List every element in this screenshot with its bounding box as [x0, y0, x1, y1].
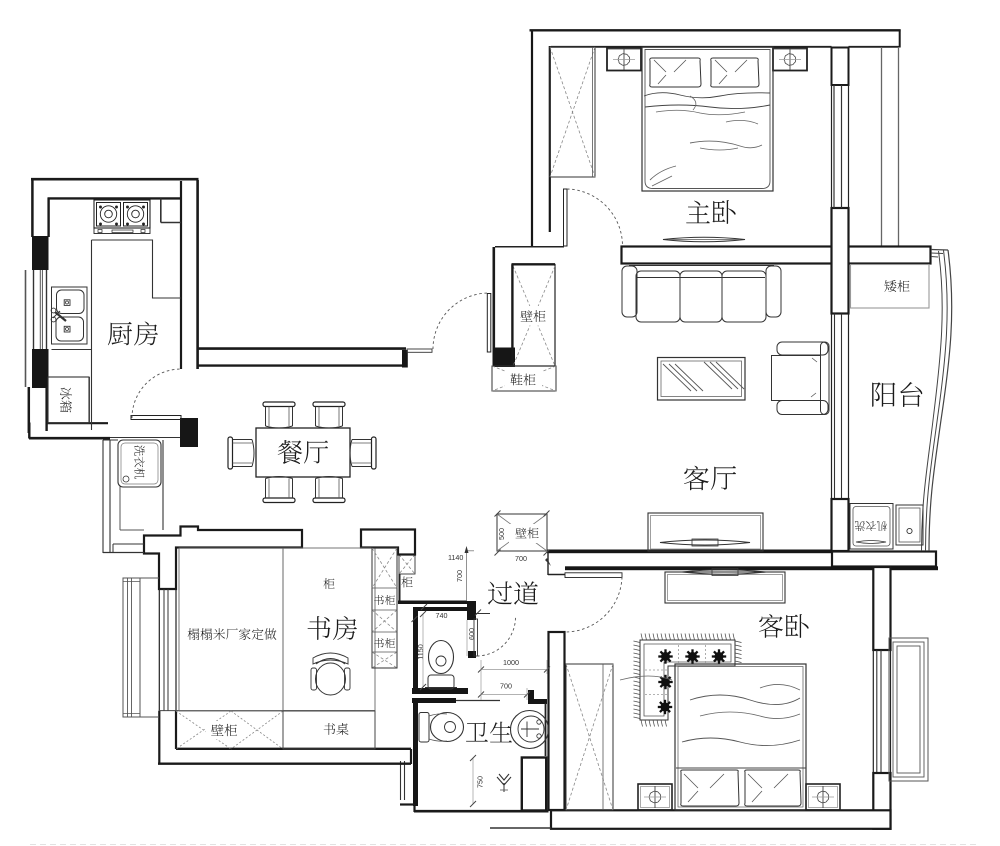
svg-text:750: 750 [476, 776, 485, 788]
svg-text:700: 700 [515, 554, 527, 563]
svg-text:740: 740 [436, 611, 448, 620]
svg-text:1000: 1000 [503, 658, 519, 667]
svg-text:1150: 1150 [416, 644, 425, 659]
svg-text:500: 500 [497, 528, 506, 540]
svg-text:1140: 1140 [448, 553, 463, 562]
svg-text:600: 600 [467, 628, 476, 640]
svg-text:700: 700 [455, 570, 464, 582]
svg-text:700: 700 [500, 682, 512, 691]
